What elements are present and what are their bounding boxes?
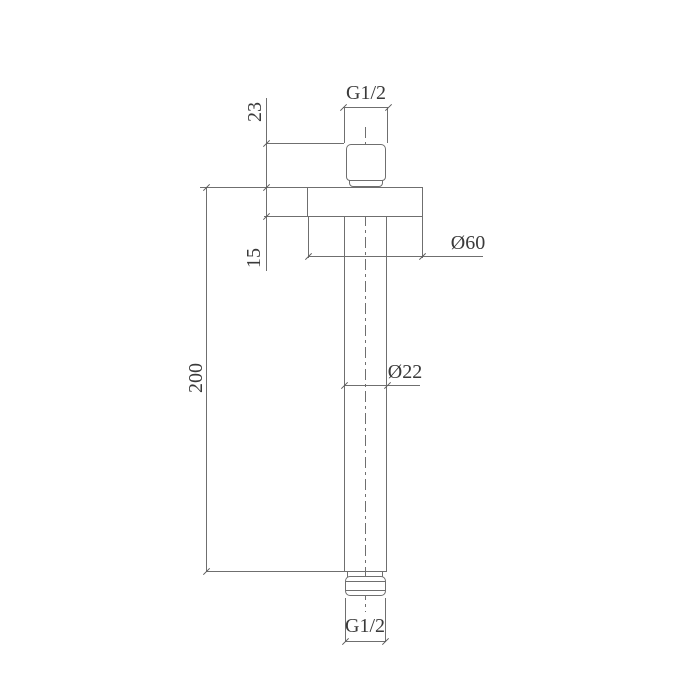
thread-size-label-bottom: G1/2: [335, 618, 395, 634]
ceiling-flange-outline: [307, 187, 423, 217]
top-thread-fitting-outline: [346, 144, 386, 181]
top-thread-neck-outline: [349, 180, 383, 187]
dim-line-thread-bottom: [345, 641, 386, 642]
dimension-label-flange-thickness: 15: [246, 238, 262, 278]
dim-line-pipe-diameter: [344, 385, 420, 386]
dim-slash: [382, 638, 389, 645]
extension-line-thread-base: [266, 143, 344, 144]
collar-detail-line-lower: [346, 590, 385, 591]
technical-drawing-canvas: G1/2 23 15 200 Ø60 Ø22 G1/2: [0, 0, 700, 700]
dim-line-thread-top: [343, 107, 388, 108]
dim-line-flange-diameter: [308, 256, 483, 257]
dimension-label-pipe-diameter: Ø22: [380, 364, 430, 380]
extension-line-thread-top-left: [344, 107, 345, 143]
extension-line-flange-bottom: [264, 216, 307, 217]
extension-line-pipe-bottom: [206, 571, 344, 572]
extension-line-thread-top-right: [387, 107, 388, 143]
extension-line-flange-top: [200, 187, 307, 188]
dim-slash: [385, 104, 392, 111]
extension-line-flange-left: [308, 217, 309, 258]
collar-detail-line-upper: [346, 581, 385, 582]
arm-pipe-outline: [344, 217, 387, 571]
extension-line-flange-right: [422, 217, 423, 258]
dimension-label-thread-height: 23: [247, 92, 263, 132]
dimension-label-arm-length: 200: [188, 348, 204, 408]
dimension-label-flange-diameter: Ø60: [443, 235, 493, 251]
thread-size-label-top: G1/2: [336, 85, 396, 101]
bottom-thread-collar-outline: [345, 576, 386, 596]
